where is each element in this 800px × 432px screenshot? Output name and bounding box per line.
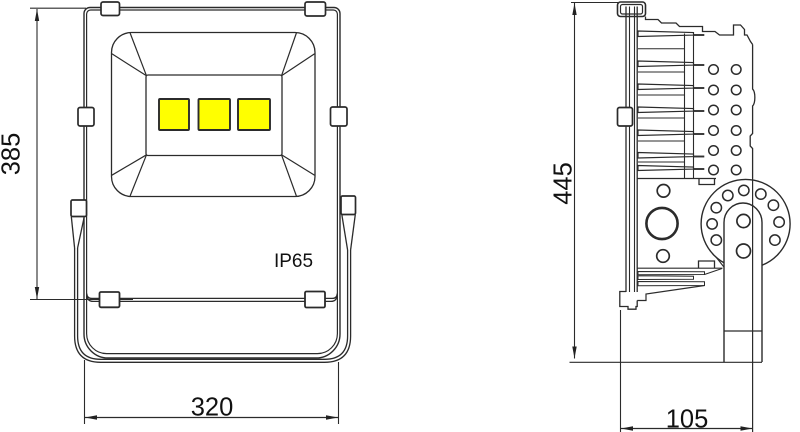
svg-text:105: 105 (666, 406, 709, 432)
svg-text:320: 320 (191, 394, 234, 422)
svg-text:385: 385 (0, 133, 26, 176)
svg-text:445: 445 (550, 162, 578, 205)
svg-text:IP65: IP65 (274, 251, 313, 272)
